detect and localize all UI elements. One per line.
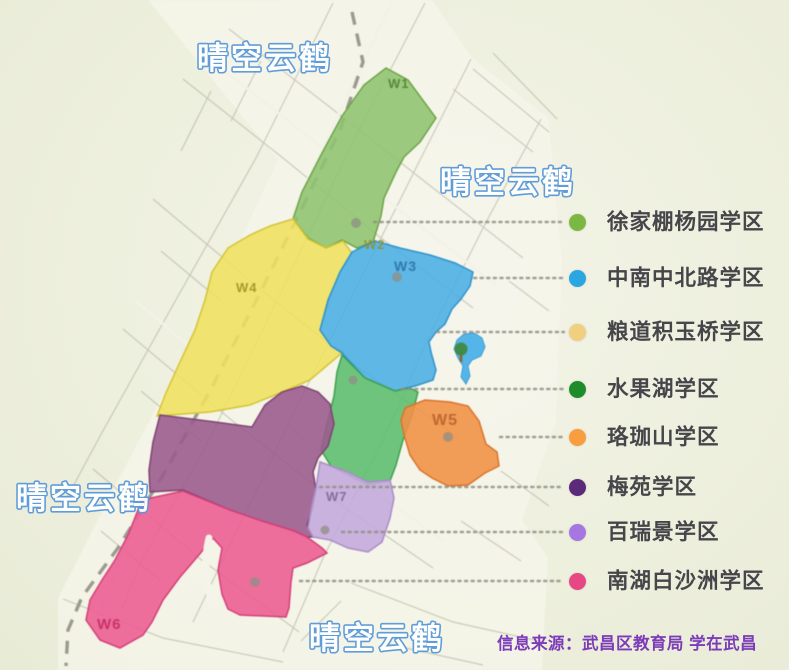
legend-label: 水果湖学区 — [607, 375, 720, 403]
area-label-w2: W2 — [364, 237, 386, 252]
legend-label: 中南中北路学区 — [607, 264, 765, 292]
area-label-w7: W7 — [326, 489, 348, 504]
legend-label: 珞珈山学区 — [607, 423, 720, 451]
legend-item-shuiguohu: 水果湖学区 — [569, 375, 720, 403]
area-label-w3: W3 — [394, 258, 417, 274]
legend-dot-dark-purple — [569, 479, 586, 496]
legend-label: 百瑞景学区 — [607, 518, 720, 546]
legend-item-nanhu-baishazhou: 南湖白沙洲学区 — [569, 567, 765, 595]
legend-dot-dark-green — [569, 381, 586, 398]
area-label-w4: W4 — [236, 280, 258, 295]
legend-dot-blue — [569, 270, 586, 287]
legend-dot-light-purple — [569, 524, 586, 541]
legend-dot-pink — [569, 573, 586, 590]
legend-item-bairuijing: 百瑞景学区 — [569, 518, 720, 546]
legend-item-meiyuan: 梅苑学区 — [569, 473, 697, 501]
area-label-w5: W5 — [432, 412, 458, 429]
legend-dot-green — [569, 214, 586, 231]
district-map-page: W1 W2 W3 W4 W5 W6 W7 晴空云鹤 晴空云鹤 晴空云鹤 晴空云鹤… — [0, 0, 789, 670]
legend-label: 南湖白沙洲学区 — [607, 567, 765, 595]
area-label-w1: W1 — [388, 76, 410, 91]
legend-label: 粮道积玉桥学区 — [607, 318, 765, 346]
source-attribution: 信息来源：武昌区教育局 学在武昌 — [497, 630, 757, 654]
area-label-w6: W6 — [97, 616, 122, 633]
legend-item-xujiapeng-yangyuan: 徐家棚杨园学区 — [569, 208, 765, 236]
legend-item-zhongnan-zhongbeilu: 中南中北路学区 — [569, 264, 765, 292]
legend-label: 徐家棚杨园学区 — [607, 208, 765, 236]
legend-item-luojiashan: 珞珈山学区 — [569, 423, 720, 451]
legend-dot-yellow — [569, 324, 586, 341]
legend-label: 梅苑学区 — [607, 473, 697, 501]
legend-item-liangdao-jiyuqiao: 粮道积玉桥学区 — [569, 318, 765, 346]
legend-dot-orange — [569, 429, 586, 446]
